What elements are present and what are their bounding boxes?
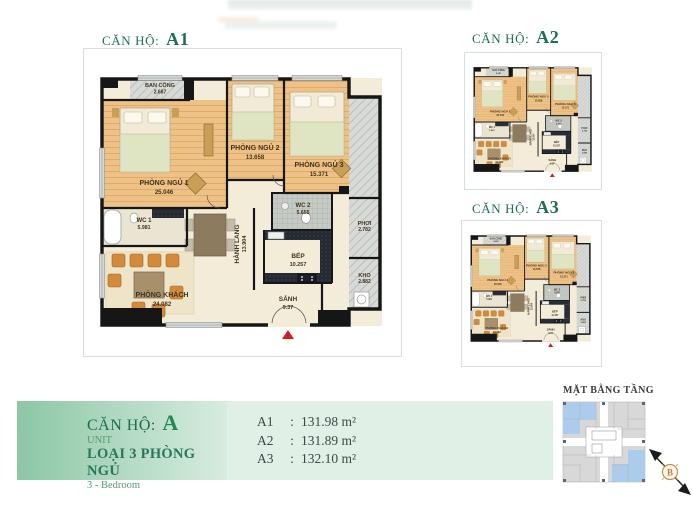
room-label-storage: KHO (582, 150, 587, 152)
room-area-kitchen: 10.257 (551, 315, 559, 317)
room-area-bedroom1: 25.046 (155, 190, 174, 196)
summary-type-label: LOẠI 3 PHÒNG NGỦ (87, 446, 227, 480)
room-area-bedroom1: 25.046 (496, 114, 504, 117)
room-area-wc2: 5.655 (556, 124, 562, 126)
room-area-kitchen: 10.257 (553, 145, 561, 147)
unit-a2-title-code: A2 (536, 27, 559, 47)
room-area-kitchen: 10.257 (290, 262, 307, 268)
room-area-entry: 9.37 (550, 163, 555, 165)
room-label-entry: SẢNH (547, 327, 555, 332)
room-area-drying: 2.782 (581, 300, 587, 302)
room-area-living: 24.082 (496, 161, 504, 164)
room-area-bedroom2: 13.658 (246, 155, 265, 161)
unit-a3-title-label: CĂN HỘ: (472, 201, 529, 216)
room-label-hallway: HÀNH LANG (232, 225, 241, 264)
area-code: A3 (257, 450, 283, 469)
unit-a3-title-code: A3 (536, 197, 559, 217)
room-area-bedroom2: 13.658 (535, 99, 543, 102)
area-value: 131.89 m² (301, 432, 356, 451)
summary-type-english: 3 - Bedroom (87, 480, 227, 491)
summary-unit-sub: UNIT (87, 435, 227, 446)
floorplan-box-a3: BAN CÔNG 2.687 PHÒNG NGỦ 1 25.046 PHÒNG … (461, 220, 602, 367)
compass-label: B (667, 468, 673, 478)
floorplan-a3-mini: BAN CÔNG 2.687 PHÒNG NGỦ 1 25.046 PHÒNG … (467, 227, 595, 355)
floorplan-a2-mini: BAN CÔNG 2.687 PHÒNG NGỦ 1 25.046 PHÒNG … (470, 59, 596, 185)
room-label-storage: KHO (581, 320, 586, 322)
room-label-living: PHÒNG KHÁCH (488, 155, 510, 160)
room-label-wc1: WC 1 (486, 294, 493, 298)
room-label-bedroom2: PHÒNG NGỦ 2 (526, 262, 547, 267)
summary-unit-label: CĂN HỘ: (87, 417, 156, 434)
room-area-wc1: 5.981 (486, 299, 492, 301)
floor-overview-title: MẶT BẰNG TẦNG (563, 385, 654, 396)
room-label-bedroom1: PHÒNG NGỦ 1 (487, 277, 508, 282)
unit-a1-title: CĂN HỘ: A1 (102, 29, 189, 50)
unit-a1-title-label: CĂN HỘ: (102, 33, 159, 48)
cropped-watermark-line (225, 21, 337, 29)
area-row-a2: A2 : 131.89 m² (257, 432, 356, 451)
cropped-watermark-accent (218, 17, 258, 22)
room-area-entry: 9.37 (283, 305, 294, 311)
unit-a2-title-label: CĂN HỘ: (472, 31, 529, 46)
unit-a2-title: CĂN HỘ: A2 (472, 27, 559, 48)
room-area-balcony: 2.687 (496, 73, 502, 75)
room-label-bedroom1: PHÒNG NGỦ 1 (490, 108, 511, 113)
room-area-balcony: 2.687 (154, 90, 167, 96)
room-label-bedroom1: PHÒNG NGỦ 1 (139, 178, 188, 187)
area-list: A1 : 131.98 m² A2 : 131.89 m² A3 : 132.1… (257, 413, 356, 469)
room-label-hallway: HÀNH LANG (526, 298, 531, 315)
room-label-balcony: BAN CÔNG (145, 81, 175, 89)
area-separator: : (283, 432, 301, 451)
room-label-bedroom3: PHÒNG NGỦ 3 (553, 270, 574, 275)
compass-north-arrow: B (647, 444, 692, 496)
entry-direction-arrow (282, 330, 294, 339)
room-label-wc1: WC 1 (137, 218, 153, 224)
unit-summary-panel: CĂN HỘ: A UNIT LOẠI 3 PHÒNG NGỦ 3 - Bedr… (17, 401, 227, 480)
room-label-wc1: WC 1 (489, 126, 496, 129)
floor-overview-map (562, 399, 646, 485)
area-separator: : (283, 413, 301, 432)
room-area-storage: 2.882 (581, 322, 587, 324)
unit-a1-title-code: A1 (166, 29, 189, 49)
room-area-bedroom2: 13.658 (533, 267, 541, 271)
room-label-wc2: WC 2 (554, 288, 561, 292)
unit-summary-band: CĂN HỘ: A UNIT LOẠI 3 PHÒNG NGỦ 3 - Bedr… (17, 401, 553, 480)
cropped-watermark-bar (228, 0, 472, 10)
room-label-kitchen: BẾP (552, 308, 558, 313)
room-label-living: PHÒNG KHÁCH (486, 325, 508, 330)
unit-a3-title: CĂN HỘ: A3 (472, 197, 559, 218)
area-row-a3: A3 : 132.10 m² (257, 450, 356, 469)
floorplan-brochure-page: { "units": { "a1": { "title_label": "CĂN… (0, 0, 692, 505)
summary-unit-title: CĂN HỘ: A (87, 410, 227, 436)
entry-direction-arrow (550, 173, 555, 177)
room-area-wc1: 5.981 (489, 130, 495, 132)
room-area-drying: 2.782 (582, 131, 588, 133)
room-label-bedroom3: PHÒNG NGỦ 3 (555, 101, 576, 106)
room-label-bedroom3: PHÒNG NGỦ 3 (294, 160, 343, 169)
room-label-living: PHÒNG KHÁCH (136, 290, 189, 299)
summary-unit-code: A (162, 410, 178, 435)
room-label-wc2: WC 2 (555, 120, 562, 123)
unit-areas-panel: A1 : 131.98 m² A2 : 131.89 m² A3 : 132.1… (227, 401, 553, 480)
entry-direction-arrow (548, 343, 553, 347)
floorplan-box-a1: BAN CÔNG 2.687 PHÒNG NGỦ 1 25.046 PHÒNG … (83, 48, 402, 357)
area-value: 131.98 m² (301, 413, 356, 432)
room-label-drying: PHƠI (580, 297, 586, 299)
area-code: A2 (257, 432, 283, 451)
room-label-entry: SẢNH (279, 294, 298, 303)
room-area-living: 24.082 (493, 330, 501, 334)
room-area-balcony: 2.687 (493, 241, 499, 243)
room-area-wc2: 5.655 (297, 210, 310, 216)
area-value: 132.10 m² (301, 450, 356, 469)
floorplan-box-a2: BAN CÔNG 2.687 PHÒNG NGỦ 1 25.046 PHÒNG … (464, 52, 602, 190)
area-row-a1: A1 : 131.98 m² (257, 413, 356, 432)
room-area-entry: 9.37 (548, 333, 553, 335)
room-label-bedroom2: PHÒNG NGỦ 2 (230, 143, 279, 152)
room-area-bedroom1: 25.046 (494, 282, 502, 286)
room-area-living: 24.082 (153, 302, 172, 308)
area-separator: : (283, 450, 301, 469)
room-area-storage: 2.882 (582, 153, 588, 155)
room-area-wc1: 5.981 (138, 225, 151, 231)
room-area-drying: 2.782 (358, 227, 371, 233)
room-area-bedroom3: 15.371 (560, 274, 568, 278)
area-code: A1 (257, 413, 283, 432)
room-label-bedroom2: PHÒNG NGỦ 2 (528, 94, 549, 99)
room-area-storage: 2.882 (358, 279, 371, 285)
room-label-drying: PHƠI (582, 128, 588, 130)
room-area-bedroom3: 15.371 (310, 172, 329, 178)
room-label-wc2: WC 2 (296, 203, 312, 209)
room-area-hallway: 13.904 (242, 235, 248, 253)
room-area-wc2: 5.655 (554, 293, 560, 295)
room-area-bedroom3: 15.371 (561, 107, 569, 110)
